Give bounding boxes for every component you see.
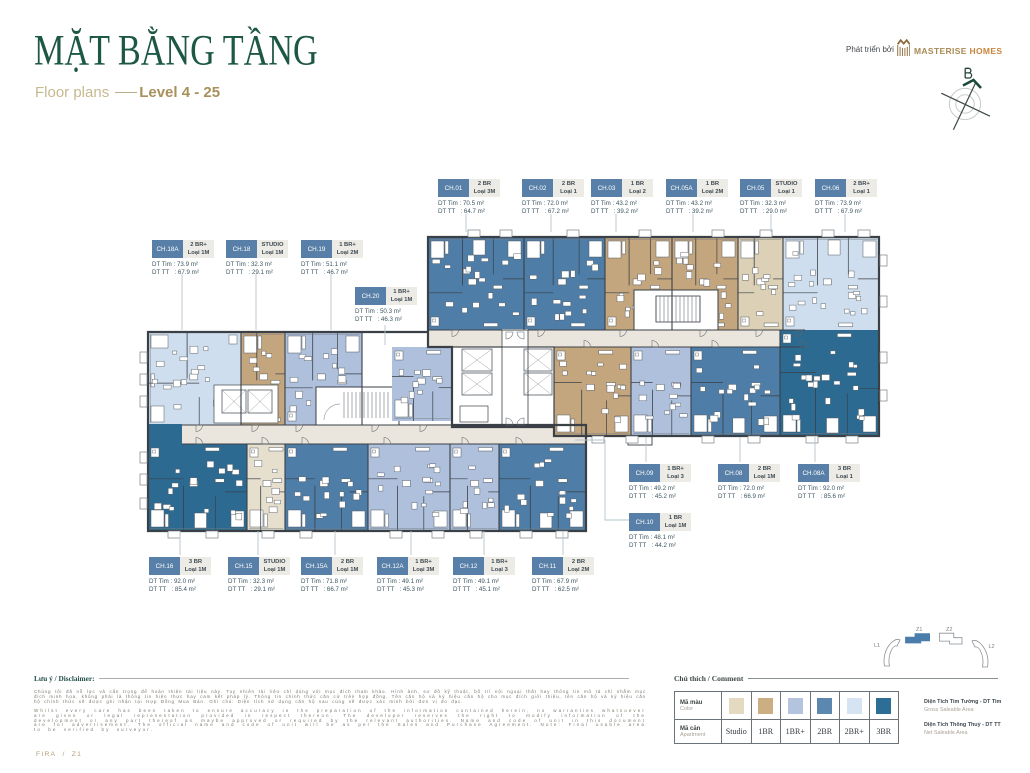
svg-text:Z2: Z2: [946, 627, 952, 633]
svg-text:Z1: Z1: [916, 627, 922, 633]
svg-text:L1: L1: [874, 643, 880, 649]
svg-text:L2: L2: [989, 644, 995, 650]
